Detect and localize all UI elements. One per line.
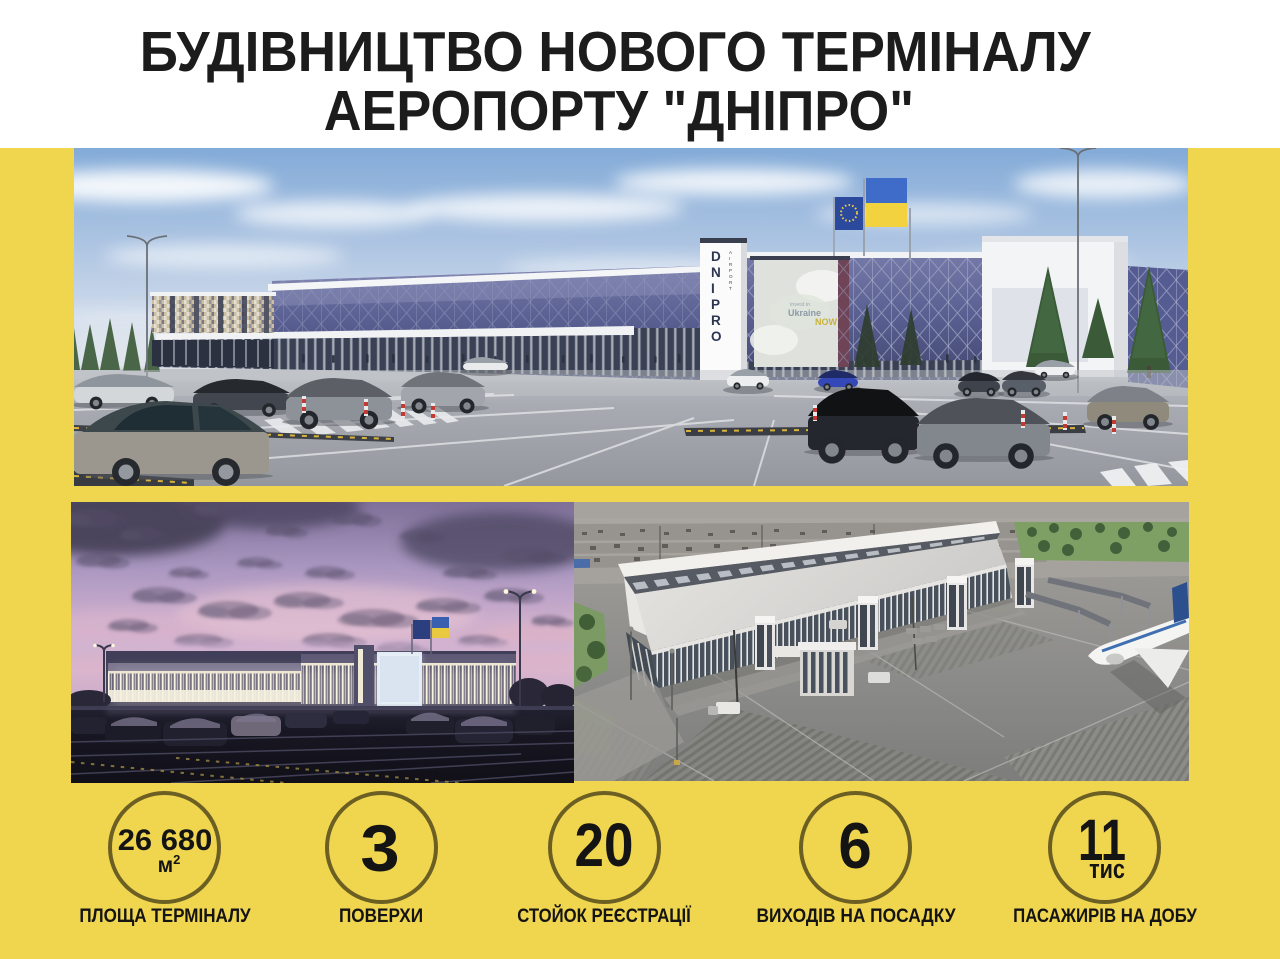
svg-text:T: T [729,286,732,291]
svg-text:P: P [729,268,732,273]
svg-text:O: O [729,274,733,279]
svg-text:I: I [729,256,730,261]
svg-text:A: A [729,250,732,255]
svg-text:R: R [711,313,721,328]
svg-text:D: D [711,249,721,264]
svg-text:O: O [711,329,722,344]
svg-text:N: N [711,265,721,280]
svg-text:P: P [711,297,720,312]
svg-text:I: I [711,281,715,296]
svg-text:NOW: NOW [815,317,838,327]
